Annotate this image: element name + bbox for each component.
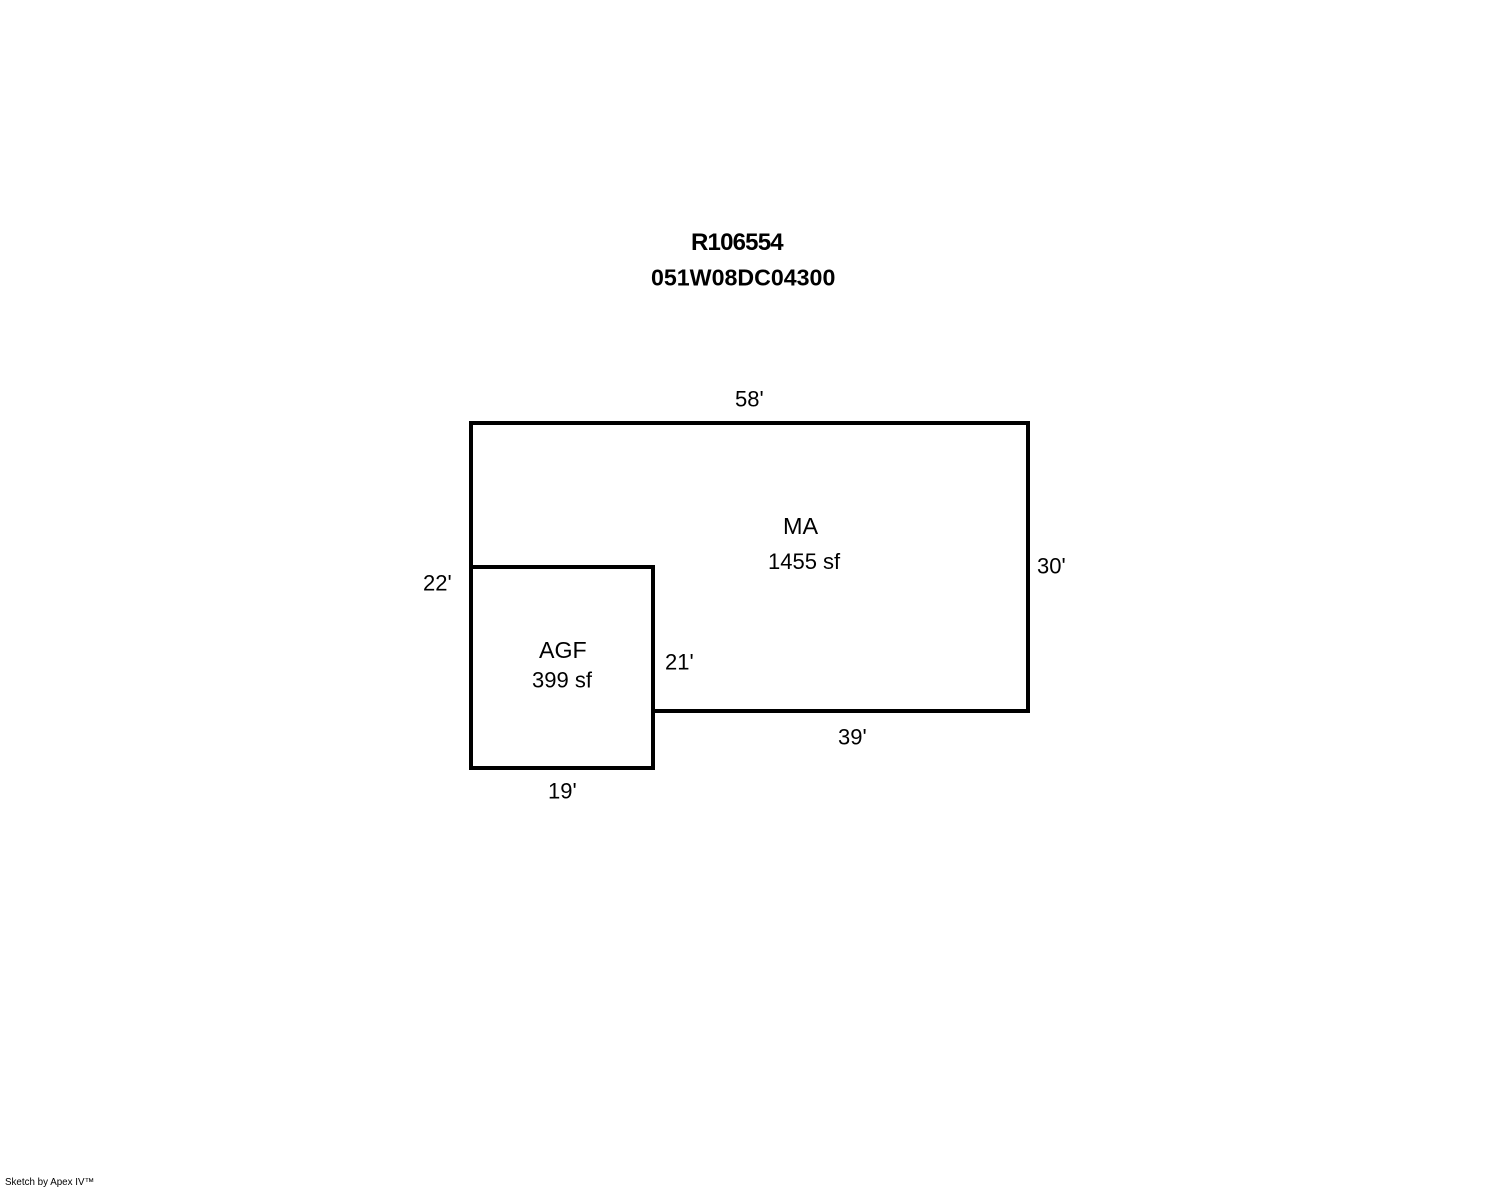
svg-text:MA: MA — [783, 513, 818, 539]
svg-text:399 sf: 399 sf — [532, 668, 593, 693]
svg-text:30': 30' — [1037, 554, 1066, 579]
svg-text:21': 21' — [665, 650, 694, 675]
svg-text:AGF: AGF — [539, 637, 587, 663]
svg-text:Sketch by Apex IV™: Sketch by Apex IV™ — [5, 1177, 94, 1188]
svg-text:051W08DC04300: 051W08DC04300 — [651, 265, 835, 291]
svg-text:19': 19' — [548, 779, 577, 804]
svg-text:1455 sf: 1455 sf — [768, 549, 841, 574]
svg-text:39': 39' — [838, 725, 867, 750]
svg-text:58': 58' — [735, 387, 764, 412]
svg-text:R106554: R106554 — [691, 229, 784, 256]
svg-text:22': 22' — [423, 571, 452, 596]
